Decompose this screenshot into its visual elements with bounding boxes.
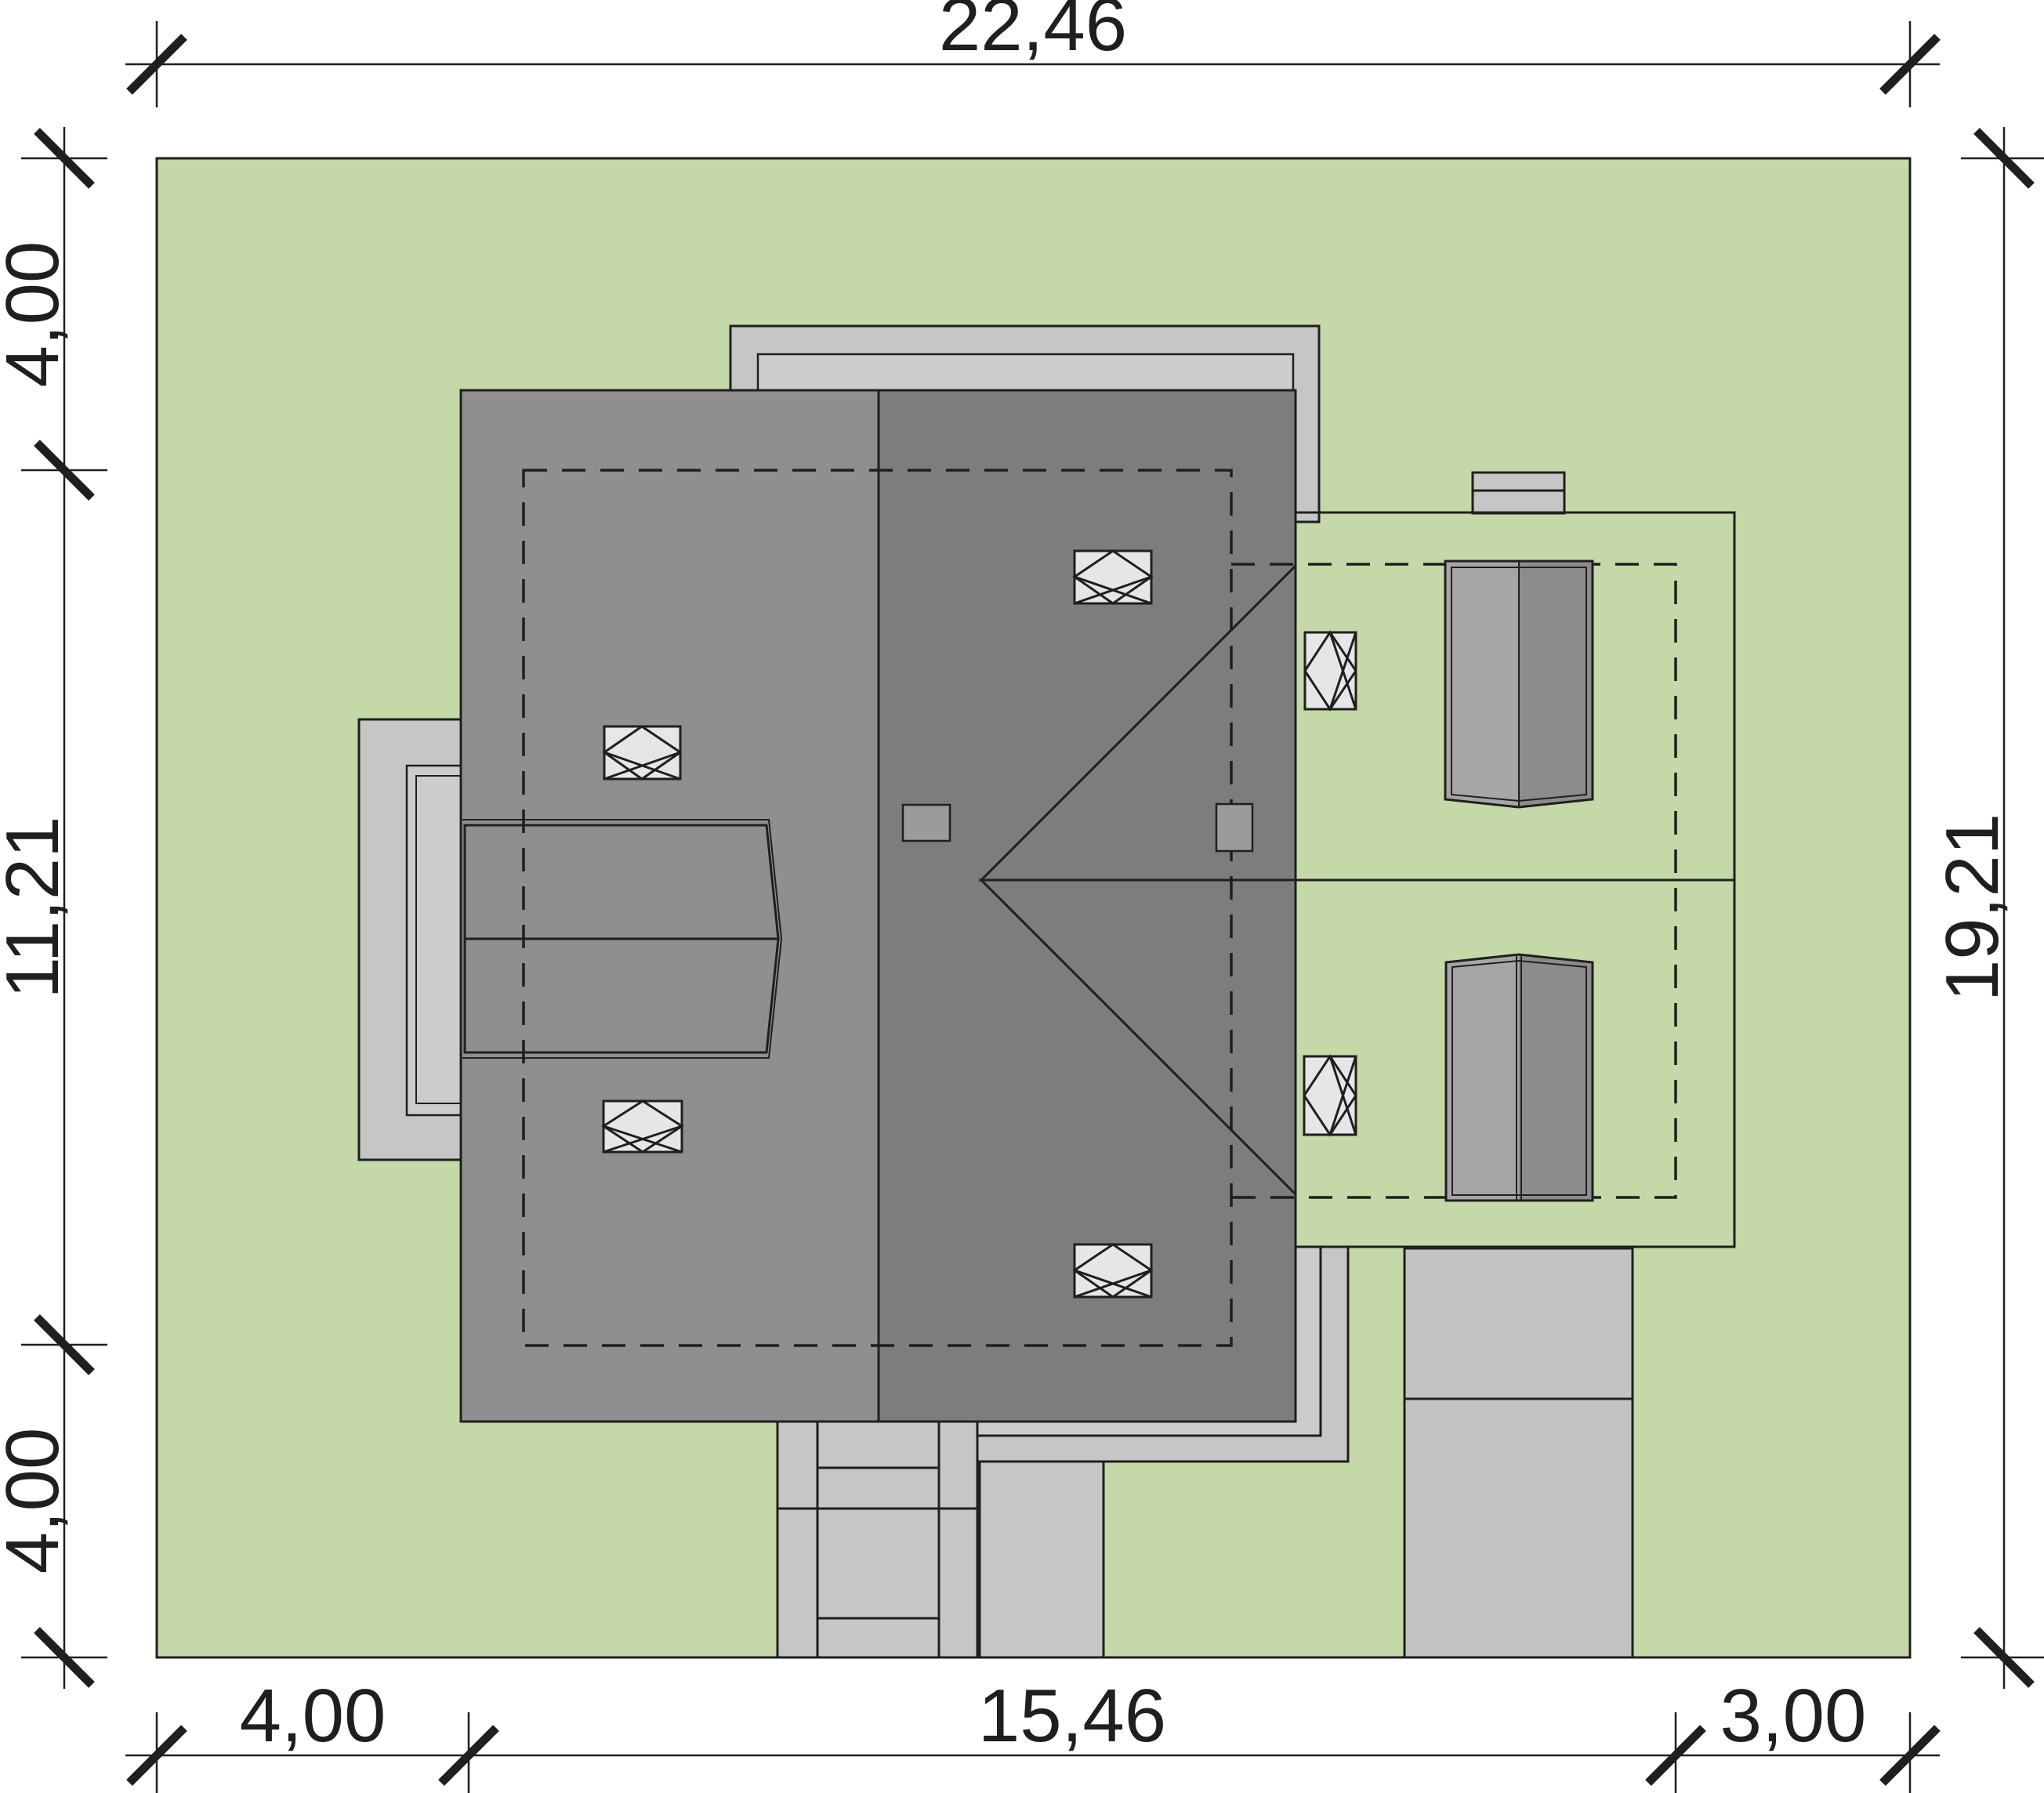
entrance-steps-outline [777, 1422, 977, 1657]
dim-label-total-depth: 19,21 [1930, 813, 2014, 1002]
terrace-west [359, 719, 470, 1160]
dim-label-total-width: 22,46 [939, 0, 1127, 67]
site-plan-page: 22,46 4,00 15,46 3,00 [0, 0, 2044, 1793]
dim-label-top-setback: 4,00 [0, 241, 74, 388]
chimney-vent-west [903, 805, 950, 841]
chimney-vent-east [1216, 804, 1252, 851]
skylight-1 [604, 726, 680, 779]
dimension-left: 4,00 11,21 4,00 [0, 127, 107, 1689]
roof-window-south [1446, 954, 1593, 1201]
dim-label-building-width: 15,46 [978, 1674, 1166, 1758]
dimension-top: 22,46 [125, 0, 1940, 107]
main-roof [461, 390, 1296, 1422]
driveway-slab [1404, 1248, 1633, 1657]
patio [980, 1462, 1104, 1657]
dimension-bottom: 4,00 15,46 3,00 [125, 1674, 1940, 1793]
skylight-3 [1075, 551, 1151, 603]
skylight-2 [603, 1101, 682, 1152]
driveway [1404, 1248, 1633, 1657]
chimney-north-body [1473, 473, 1564, 513]
dim-label-bottom-setback: 4,00 [0, 1428, 74, 1574]
site-plan-drawing: 22,46 4,00 15,46 3,00 [0, 0, 2044, 1793]
dimension-right: 19,21 [1930, 127, 2044, 1689]
skylight-6 [1304, 1056, 1356, 1135]
entrance-steps [777, 1422, 977, 1657]
dim-label-right-setback: 3,00 [1720, 1674, 1867, 1758]
skylight-4 [1075, 1244, 1151, 1297]
roof-window-north [1445, 561, 1593, 807]
skylight-5 [1305, 632, 1356, 709]
dim-label-building-depth: 11,21 [0, 816, 74, 998]
chimney-north [1473, 473, 1564, 513]
dim-label-left-setback: 4,00 [240, 1674, 386, 1758]
